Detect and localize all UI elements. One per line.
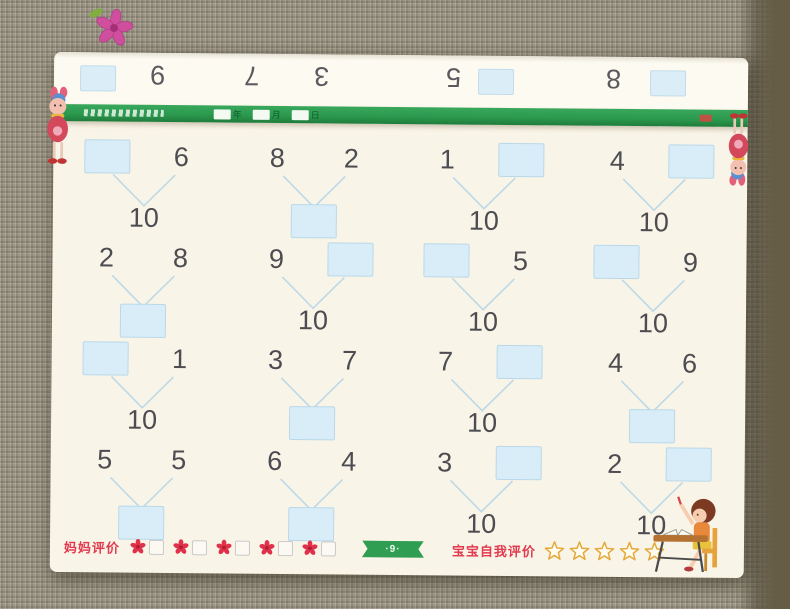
- peek-number: 7: [244, 60, 259, 91]
- red-flower-icon: [302, 540, 318, 556]
- answer-box[interactable]: [593, 245, 639, 279]
- answer-box[interactable]: [496, 345, 542, 379]
- top-addends: 37: [237, 342, 387, 379]
- slot: 10: [121, 203, 167, 234]
- mom-evaluation-label: 妈妈评价: [64, 537, 120, 556]
- slot: 5: [82, 444, 128, 475]
- answer-box[interactable]: [629, 409, 675, 443]
- addend-number: 2: [99, 242, 114, 273]
- slot: 8: [157, 242, 203, 273]
- flower-rating-unit: [216, 539, 250, 555]
- top-addends: 55: [67, 441, 217, 478]
- slot: [496, 446, 542, 480]
- bottom-sum: 10: [409, 205, 559, 237]
- photo-background: 97358 年月日: [0, 0, 790, 609]
- star-rating-icon[interactable]: [619, 540, 640, 561]
- worksheet-page: 97358 年月日: [50, 52, 749, 578]
- slot: 5: [156, 444, 202, 475]
- answer-box[interactable]: [289, 406, 335, 440]
- sum-number: 10: [467, 408, 497, 439]
- baby-self-evaluation-label: 宝宝自我评价: [452, 540, 536, 560]
- answer-box[interactable]: [82, 341, 128, 375]
- red-flower-icon: [130, 539, 146, 555]
- slot: 10: [460, 307, 506, 338]
- star-rating-icon[interactable]: [594, 540, 615, 561]
- top-addends: 7: [407, 343, 557, 380]
- addend-number: 2: [344, 143, 359, 174]
- slot: 2: [592, 448, 638, 479]
- peek-answer-box: [478, 69, 514, 95]
- answer-box[interactable]: [498, 143, 544, 177]
- addend-number: 8: [173, 243, 188, 274]
- number-bond-problem: 110: [67, 340, 218, 442]
- bottom-sum: 10: [69, 202, 219, 234]
- slot: 10: [461, 206, 507, 237]
- number-bond-problem: 110: [409, 141, 560, 243]
- flower-rating-unit: [302, 540, 336, 556]
- bottom-sum: 10: [579, 207, 729, 239]
- addend-number: 3: [437, 447, 452, 478]
- date-field: 年: [214, 109, 242, 119]
- bottom-sum: 10: [578, 308, 728, 340]
- number-bond-problem: 710: [407, 343, 558, 445]
- evaluation-checkbox[interactable]: [235, 540, 250, 555]
- slot: 2: [328, 143, 374, 174]
- bottom-sum: 10: [67, 404, 217, 436]
- evaluation-checkbox[interactable]: [192, 540, 207, 555]
- answer-box[interactable]: [291, 204, 337, 238]
- top-addends: 5: [408, 242, 558, 279]
- slot: [120, 304, 166, 338]
- slot: 7: [422, 346, 468, 377]
- answer-box[interactable]: [327, 242, 373, 276]
- slot: [498, 143, 544, 177]
- addend-number: 1: [440, 144, 455, 175]
- number-bond-problem: 910: [578, 244, 729, 346]
- red-flower-icon: [173, 539, 189, 555]
- slot: 10: [630, 308, 676, 339]
- slot: 4: [592, 347, 638, 378]
- page-number-badge: ·9·: [362, 540, 424, 558]
- slot: 6: [252, 445, 298, 476]
- slot: 2: [83, 242, 129, 273]
- slot: 3: [252, 344, 298, 375]
- answer-box[interactable]: [668, 144, 714, 178]
- addend-number: 8: [270, 142, 285, 173]
- addend-number: 1: [172, 344, 187, 375]
- slot: [496, 345, 542, 379]
- red-flower-icon: [259, 540, 275, 556]
- addend-number: 2: [607, 448, 622, 479]
- sum-number: 10: [129, 203, 159, 234]
- addend-number: 4: [608, 347, 623, 378]
- slot: [593, 245, 639, 279]
- sum-number: 10: [298, 305, 328, 336]
- top-addends: 9: [578, 244, 728, 281]
- date-fields: 年月日: [214, 107, 320, 121]
- number-bond-problem: 910: [238, 241, 389, 343]
- bottom-sum: [239, 204, 389, 239]
- bottom-sum: 10: [408, 306, 558, 338]
- flower-rating-unit: [173, 539, 207, 555]
- number-bond-problem: 310: [406, 444, 557, 546]
- slot: 5: [497, 245, 543, 276]
- peek-number: 5: [446, 61, 461, 92]
- sum-number: 10: [469, 206, 499, 237]
- bottom-sum: 10: [407, 407, 557, 439]
- answer-box[interactable]: [120, 304, 166, 338]
- top-addends: 4: [579, 143, 729, 180]
- date-unit-label: 年: [233, 109, 242, 119]
- slot: 6: [158, 141, 204, 172]
- bottom-sum: [68, 303, 218, 338]
- slot: [668, 144, 714, 178]
- slot: 1: [424, 144, 470, 175]
- date-unit-label: 日: [311, 110, 320, 120]
- sum-number: 10: [468, 307, 498, 338]
- date-field: 月: [253, 109, 281, 119]
- evaluation-checkbox[interactable]: [321, 541, 336, 556]
- number-bond-problem: 28: [68, 239, 219, 341]
- top-addends: 28: [68, 239, 218, 276]
- slot: 10: [119, 405, 165, 436]
- addend-number: 6: [267, 445, 282, 476]
- top-addends: 6: [69, 138, 219, 175]
- bottom-sum: 10: [238, 305, 388, 337]
- peek-number: 9: [150, 59, 165, 90]
- doll-mascot-upside-down-icon: [723, 104, 754, 188]
- addend-number: 5: [513, 245, 528, 276]
- previous-page-peek: 97358: [54, 52, 748, 110]
- addend-number: 9: [683, 247, 698, 278]
- slot: 8: [254, 142, 300, 173]
- slot: 1: [156, 343, 202, 374]
- number-bond-problem: 510: [408, 242, 559, 344]
- booklet-title-illegible: [84, 109, 164, 117]
- peek-answer-box: [650, 70, 686, 96]
- slot: 3: [422, 447, 468, 478]
- number-bond-problem: 37: [237, 342, 388, 444]
- evaluation-checkbox[interactable]: [278, 540, 293, 555]
- slot: [84, 139, 130, 173]
- addend-number: 6: [682, 348, 697, 379]
- addend-number: 6: [174, 142, 189, 173]
- top-addends: 2: [577, 446, 727, 483]
- peek-number: 8: [606, 63, 621, 94]
- doll-mascot-icon: [41, 84, 74, 174]
- top-addends: 3: [407, 444, 557, 481]
- answer-box[interactable]: [423, 243, 469, 277]
- answer-box[interactable]: [84, 139, 130, 173]
- evaluation-checkbox[interactable]: [149, 539, 164, 554]
- number-bond-problem: 55: [66, 441, 217, 543]
- addend-number: 4: [610, 145, 625, 176]
- slot: [291, 204, 337, 238]
- slot: [666, 447, 712, 481]
- slot: 10: [290, 305, 336, 336]
- number-bond-grid: 6108211041028910510910110377104655643102…: [56, 138, 740, 550]
- bottom-sum: [237, 406, 387, 441]
- star-rating-icon[interactable]: [544, 540, 565, 561]
- addend-number: 5: [97, 444, 112, 475]
- top-addends: 64: [237, 443, 387, 480]
- sum-number: 10: [639, 207, 669, 238]
- slot: 10: [459, 408, 505, 439]
- date-blank-box[interactable]: [214, 109, 231, 119]
- band-red-mark: [700, 115, 712, 122]
- slot: 9: [253, 243, 299, 274]
- slot: 4: [594, 145, 640, 176]
- addend-number: 3: [268, 344, 283, 375]
- star-rating-icon[interactable]: [569, 540, 590, 561]
- bottom-sum: [577, 409, 727, 444]
- addend-number: 7: [438, 346, 453, 377]
- date-blank-box[interactable]: [253, 109, 270, 119]
- peek-answer-box: [80, 65, 116, 91]
- addend-number: 4: [341, 446, 356, 477]
- addend-number: 5: [171, 445, 186, 476]
- flower-rating-unit: [259, 540, 293, 556]
- evaluation-footer: 妈妈评价 ·9· 宝宝自我评价: [64, 532, 646, 565]
- slot: 6: [666, 348, 712, 379]
- top-addends: 9: [238, 241, 388, 278]
- red-flower-icon: [216, 539, 232, 555]
- slot: [629, 409, 675, 443]
- date-blank-box[interactable]: [292, 110, 309, 120]
- date-field: 日: [292, 110, 320, 120]
- mom-evaluation-flowers: [130, 539, 336, 557]
- answer-box[interactable]: [666, 447, 712, 481]
- number-bond-problem: 82: [239, 140, 390, 242]
- slot: 7: [326, 345, 372, 376]
- top-addends: 1: [409, 141, 559, 178]
- slot: [82, 341, 128, 375]
- number-bond-problem: 46: [577, 345, 728, 447]
- slot: 4: [326, 446, 372, 477]
- answer-box[interactable]: [496, 446, 542, 480]
- pink-flower-icon: [82, 2, 144, 52]
- number-bond-problem: 64: [236, 443, 387, 545]
- slot: [423, 243, 469, 277]
- sum-number: 10: [638, 308, 668, 339]
- flower-rating-unit: [130, 539, 164, 555]
- date-unit-label: 月: [272, 109, 281, 119]
- number-bond-problem: 410: [579, 143, 730, 245]
- girl-at-desk-icon: [644, 487, 735, 576]
- addend-number: 7: [342, 345, 357, 376]
- sum-number: 10: [127, 405, 157, 436]
- addend-number: 9: [269, 243, 284, 274]
- peek-number: 3: [314, 60, 329, 91]
- top-addends: 1: [67, 340, 217, 377]
- number-bond-problem: 610: [69, 138, 220, 240]
- slot: [289, 406, 335, 440]
- top-addends: 82: [239, 140, 389, 177]
- slot: [327, 242, 373, 276]
- top-addends: 46: [577, 345, 727, 382]
- slot: 10: [631, 207, 677, 238]
- slot: 9: [667, 247, 713, 278]
